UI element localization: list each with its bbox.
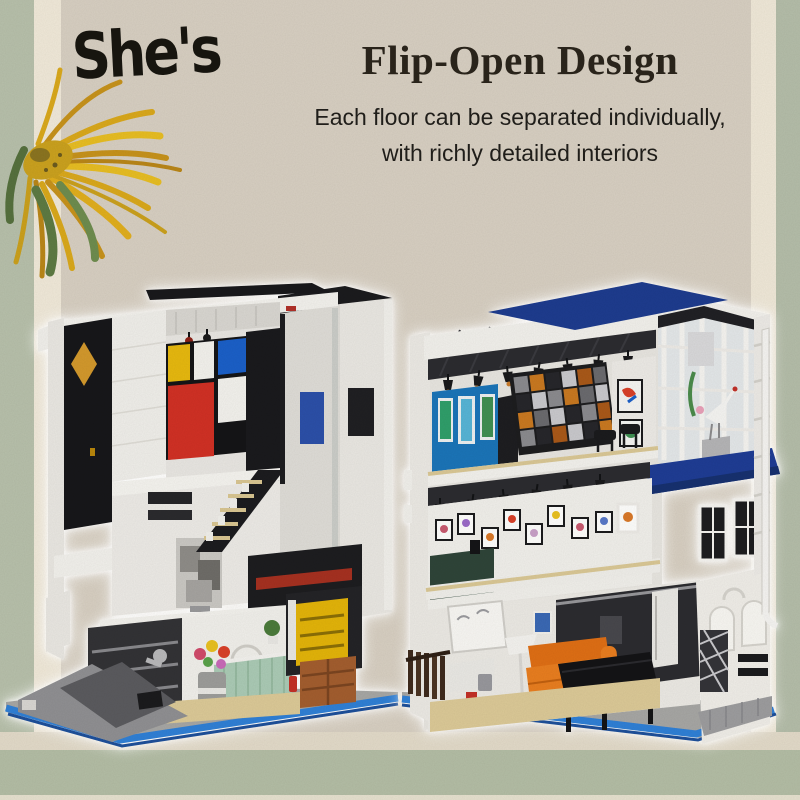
hinge-tab-1 [404, 470, 412, 490]
mosaic-feature-wall [509, 362, 616, 455]
hinge-tab-2 [404, 505, 412, 523]
fire-extinguisher [289, 676, 297, 692]
white-art-wall [612, 356, 656, 458]
glass-atrium [658, 306, 756, 476]
top-floor-studio [166, 302, 280, 478]
hinge-edge [384, 300, 392, 610]
facade-windows [700, 500, 762, 560]
blue-sculpture [300, 392, 324, 444]
wooden-crates [300, 656, 356, 708]
black-facade-panel [64, 318, 112, 530]
white-corner-piece [46, 590, 70, 652]
black-column [246, 328, 280, 474]
whiteboard [448, 601, 507, 652]
blue-picture [534, 612, 551, 633]
striped-vent-1 [738, 654, 768, 662]
product-photo-scene [0, 0, 800, 800]
lattice-panel [700, 630, 728, 692]
sunflower-illustration [9, 70, 180, 276]
garden-fence [406, 650, 450, 700]
downpipe [762, 328, 777, 626]
right-building [402, 282, 780, 744]
striped-vent-2 [738, 668, 768, 676]
coffee-machine [470, 540, 480, 554]
white-brick-wall [112, 310, 166, 482]
product-poster: She's Flip-Open Design Each floor can be… [0, 0, 800, 800]
blue-gallery-wall [432, 384, 498, 474]
side-window [348, 388, 374, 436]
roof-red-accent [286, 306, 296, 311]
bucket [478, 674, 492, 691]
left-building [6, 283, 398, 746]
mondrian-mural [166, 336, 246, 460]
wall-plant [264, 620, 280, 636]
